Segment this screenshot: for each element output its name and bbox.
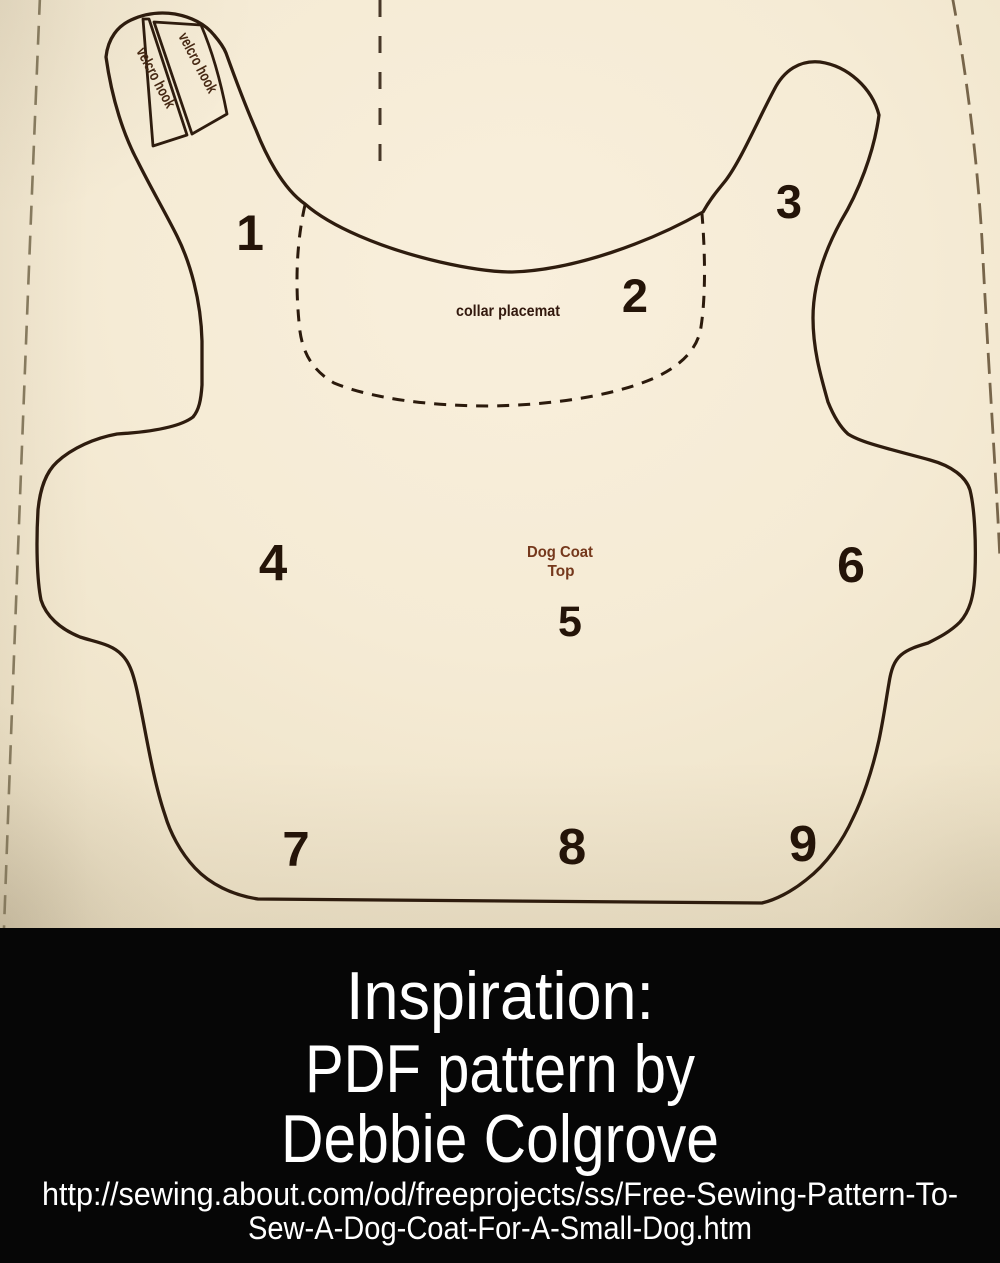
- svg-text:Sew-A-Dog-Coat-For-A-Small-Dog: Sew-A-Dog-Coat-For-A-Small-Dog.htm: [248, 1210, 752, 1246]
- svg-text:Debbie Colgrove: Debbie Colgrove: [281, 1101, 719, 1177]
- svg-text:PDF pattern by: PDF pattern by: [305, 1031, 695, 1107]
- svg-text:6: 6: [837, 537, 865, 593]
- svg-text:7: 7: [282, 823, 309, 877]
- svg-text:4: 4: [259, 534, 288, 591]
- svg-text:collar placemat: collar placemat: [456, 303, 560, 320]
- svg-text:1: 1: [236, 205, 264, 261]
- svg-text:Top: Top: [548, 563, 575, 580]
- svg-text:8: 8: [558, 818, 586, 875]
- svg-text:2: 2: [622, 269, 648, 322]
- svg-text:http://sewing.about.com/od/fre: http://sewing.about.com/od/freeprojects/…: [42, 1176, 958, 1212]
- svg-text:3: 3: [776, 175, 802, 228]
- svg-text:5: 5: [558, 598, 582, 646]
- svg-text:Inspiration:: Inspiration:: [346, 958, 654, 1034]
- svg-text:9: 9: [789, 815, 817, 872]
- svg-text:Dog Coat: Dog Coat: [527, 544, 593, 561]
